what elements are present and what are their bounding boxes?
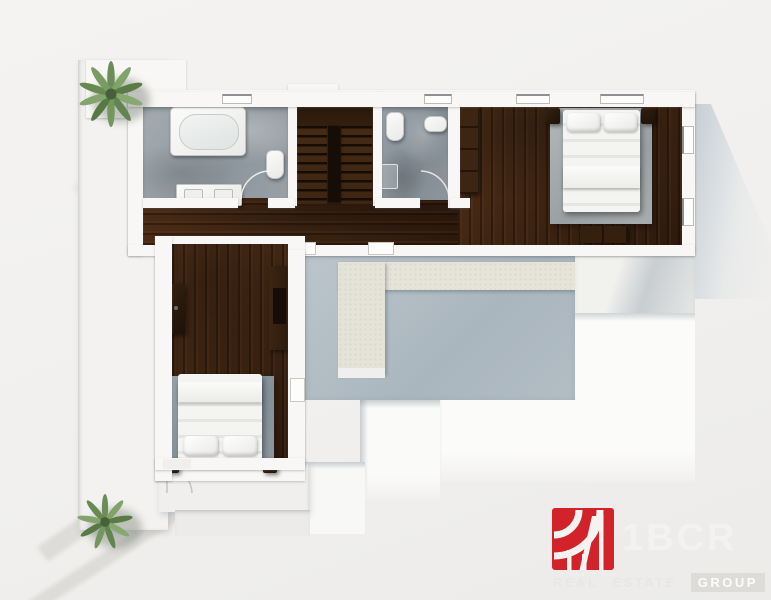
terrace-facade-wall (288, 245, 695, 256)
terrace-door-threshold (290, 378, 305, 402)
window (516, 94, 550, 104)
bedroom1-nightstand-right (641, 108, 655, 124)
bedroom2-balcony-step (175, 510, 310, 536)
terrace-path-end-cap (338, 368, 385, 378)
tagline-word-estate: ESTATE (612, 575, 676, 590)
brand-logo-mark-icon (552, 508, 614, 570)
terrace-door-threshold (368, 242, 394, 255)
wall-segment (268, 198, 295, 208)
stair-flight-right (341, 126, 372, 204)
bedroom2-blanket-fold (178, 382, 262, 402)
bathtub (170, 107, 246, 156)
terrace-path-vertical (338, 262, 385, 374)
brand-tagline: REAL ESTATE GROUP (553, 573, 765, 592)
wall-segment (450, 198, 470, 208)
window (424, 94, 452, 104)
terrace-roof-band (575, 250, 695, 313)
bedroom1-pillow-left (566, 113, 600, 132)
ground-shadow-right (694, 104, 771, 299)
brand-logo: 1BCR REAL ESTATE GROUP (552, 505, 762, 595)
lower-roof-step-small (307, 462, 365, 534)
bedroom1-pillow-right (603, 113, 637, 132)
bedroom1-wardrobe (460, 106, 478, 194)
shower-drain (381, 164, 398, 189)
window (600, 94, 644, 104)
floor-plan-render: 1BCR REAL ESTATE GROUP (0, 0, 771, 600)
potted-plant-bottom (76, 492, 134, 552)
bathroom2-door-swing-arc (420, 168, 450, 200)
balcony-door-gap (163, 459, 191, 469)
bedroom1-blanket-fold (563, 166, 640, 188)
stair-center-spine (328, 126, 340, 202)
bedroom2-pillow-left (183, 436, 218, 456)
wall-segment (143, 198, 238, 208)
window (682, 198, 694, 226)
tagline-word-group: GROUP (691, 573, 765, 592)
bathtub-basin (179, 114, 239, 150)
toilet-bathroom2 (386, 112, 404, 141)
staircase (293, 100, 375, 206)
bedroom1-foot-bench (580, 226, 628, 243)
window (222, 94, 252, 104)
wall-segment (155, 236, 172, 481)
sink-bathroom2 (424, 116, 447, 132)
bedroom2-double-bed (178, 374, 262, 464)
wall-segment (682, 92, 695, 252)
window (682, 126, 694, 154)
wall-segment (288, 92, 297, 206)
brand-name: 1BCR (622, 517, 737, 560)
bedroom2-pillow-right (222, 436, 257, 456)
bedroom1-nightstand-left (546, 108, 560, 124)
bedroom1-double-bed (563, 110, 640, 212)
lower-roof-step-mid (360, 400, 440, 500)
wall-segment (448, 92, 460, 208)
stair-flight-left (296, 126, 327, 204)
wall-segment (375, 198, 420, 208)
wall-segment (373, 92, 382, 206)
bathroom1-door-swing-arc (240, 168, 270, 200)
wall-segment (288, 250, 305, 465)
tagline-word-real: REAL (553, 575, 598, 590)
potted-plant-top (78, 60, 144, 128)
